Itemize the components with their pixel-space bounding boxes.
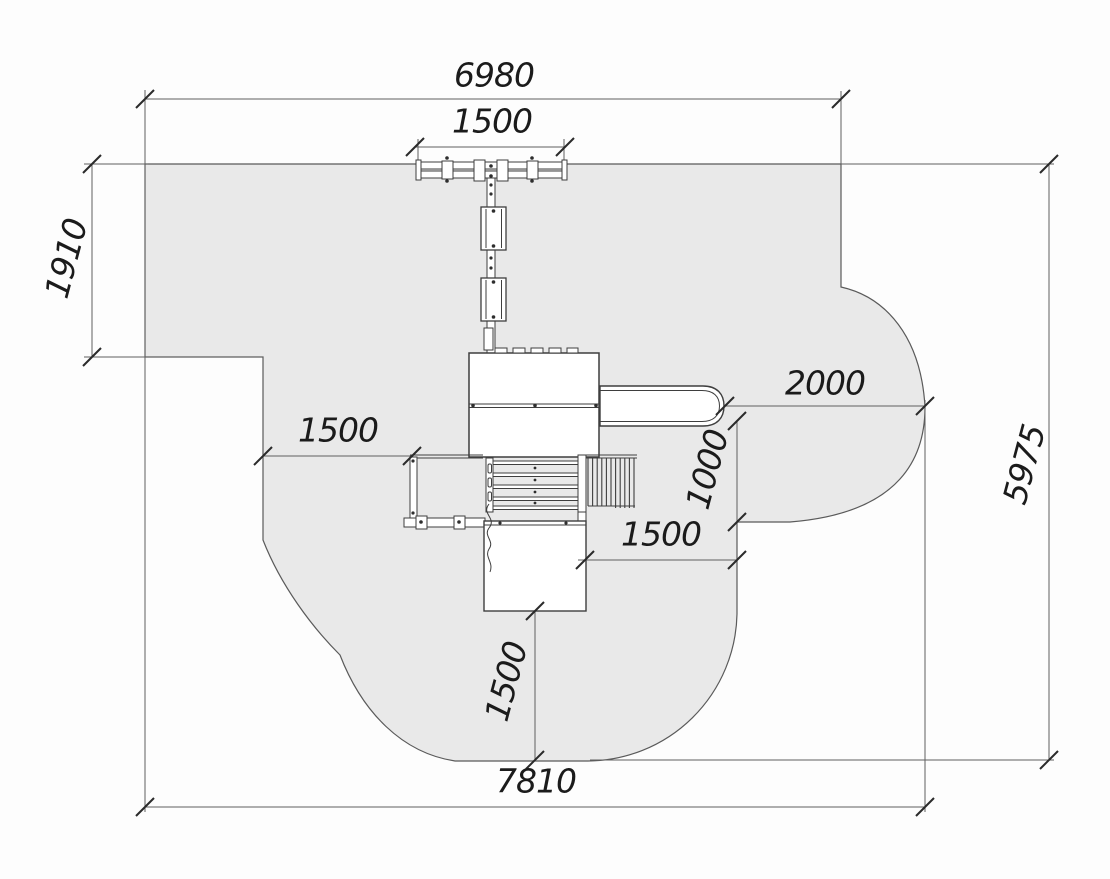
swing-seat-1 [481, 207, 506, 250]
swing-post [487, 178, 495, 353]
dimension-left-notch-height: 1910 [37, 155, 101, 366]
beam-clamp-right [527, 161, 538, 179]
dim-label-6980: 6980 [454, 56, 534, 95]
swing-seat-2 [481, 278, 506, 321]
dimension-overall-width-bottom: 7810 [136, 762, 934, 817]
dimension-swing-beam-width: 1500 [406, 102, 574, 157]
dimension-overall-width-top: 6980 [136, 56, 850, 109]
plan-drawing: 6980 1500 1910 2000 1000 1500 [0, 0, 1110, 879]
dim-label-2000: 2000 [785, 364, 865, 403]
dim-label-1500-mid: 1500 [621, 515, 701, 554]
dim-label-1500-top: 1500 [452, 102, 532, 141]
dim-label-1500-left: 1500 [298, 411, 378, 450]
post-bracket [484, 328, 493, 350]
slide-tube [600, 386, 724, 426]
beam-clamp-left [442, 161, 453, 179]
dim-label-7810: 7810 [496, 762, 576, 801]
beam-clamp-center-left [474, 160, 485, 181]
dimension-overall-height-right: 5975 [995, 155, 1058, 769]
main-platform [469, 348, 599, 457]
playground-safety-zone-plan: 6980 1500 1910 2000 1000 1500 [0, 0, 1110, 879]
dim-label-5975: 5975 [995, 421, 1053, 508]
beam-clamp-center-right [497, 160, 508, 181]
dim-label-1910: 1910 [37, 215, 95, 302]
